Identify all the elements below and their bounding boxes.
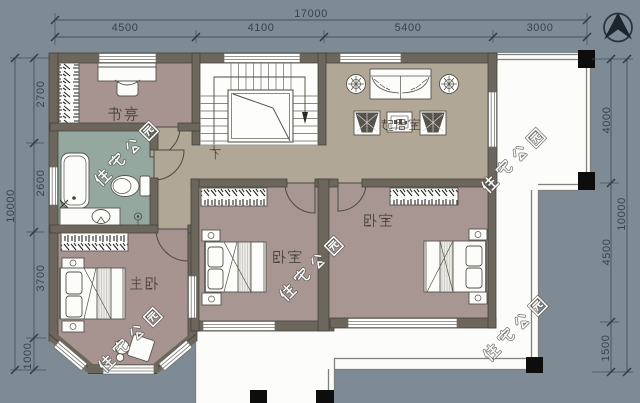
svg-text:4500: 4500: [112, 22, 139, 34]
svg-text:1000: 1000: [22, 343, 34, 370]
svg-text:2700: 2700: [35, 81, 47, 108]
svg-text:3700: 3700: [35, 265, 47, 292]
svg-text:3000: 3000: [527, 22, 554, 34]
svg-text:10000: 10000: [616, 197, 628, 231]
svg-text:2600: 2600: [35, 170, 47, 197]
svg-text:1500: 1500: [600, 335, 612, 362]
svg-text:10000: 10000: [5, 189, 17, 223]
svg-text:17000: 17000: [294, 8, 328, 20]
svg-text:4500: 4500: [601, 239, 613, 266]
svg-text:5400: 5400: [395, 22, 422, 34]
svg-text:4000: 4000: [601, 107, 613, 134]
svg-text:4100: 4100: [248, 22, 275, 34]
